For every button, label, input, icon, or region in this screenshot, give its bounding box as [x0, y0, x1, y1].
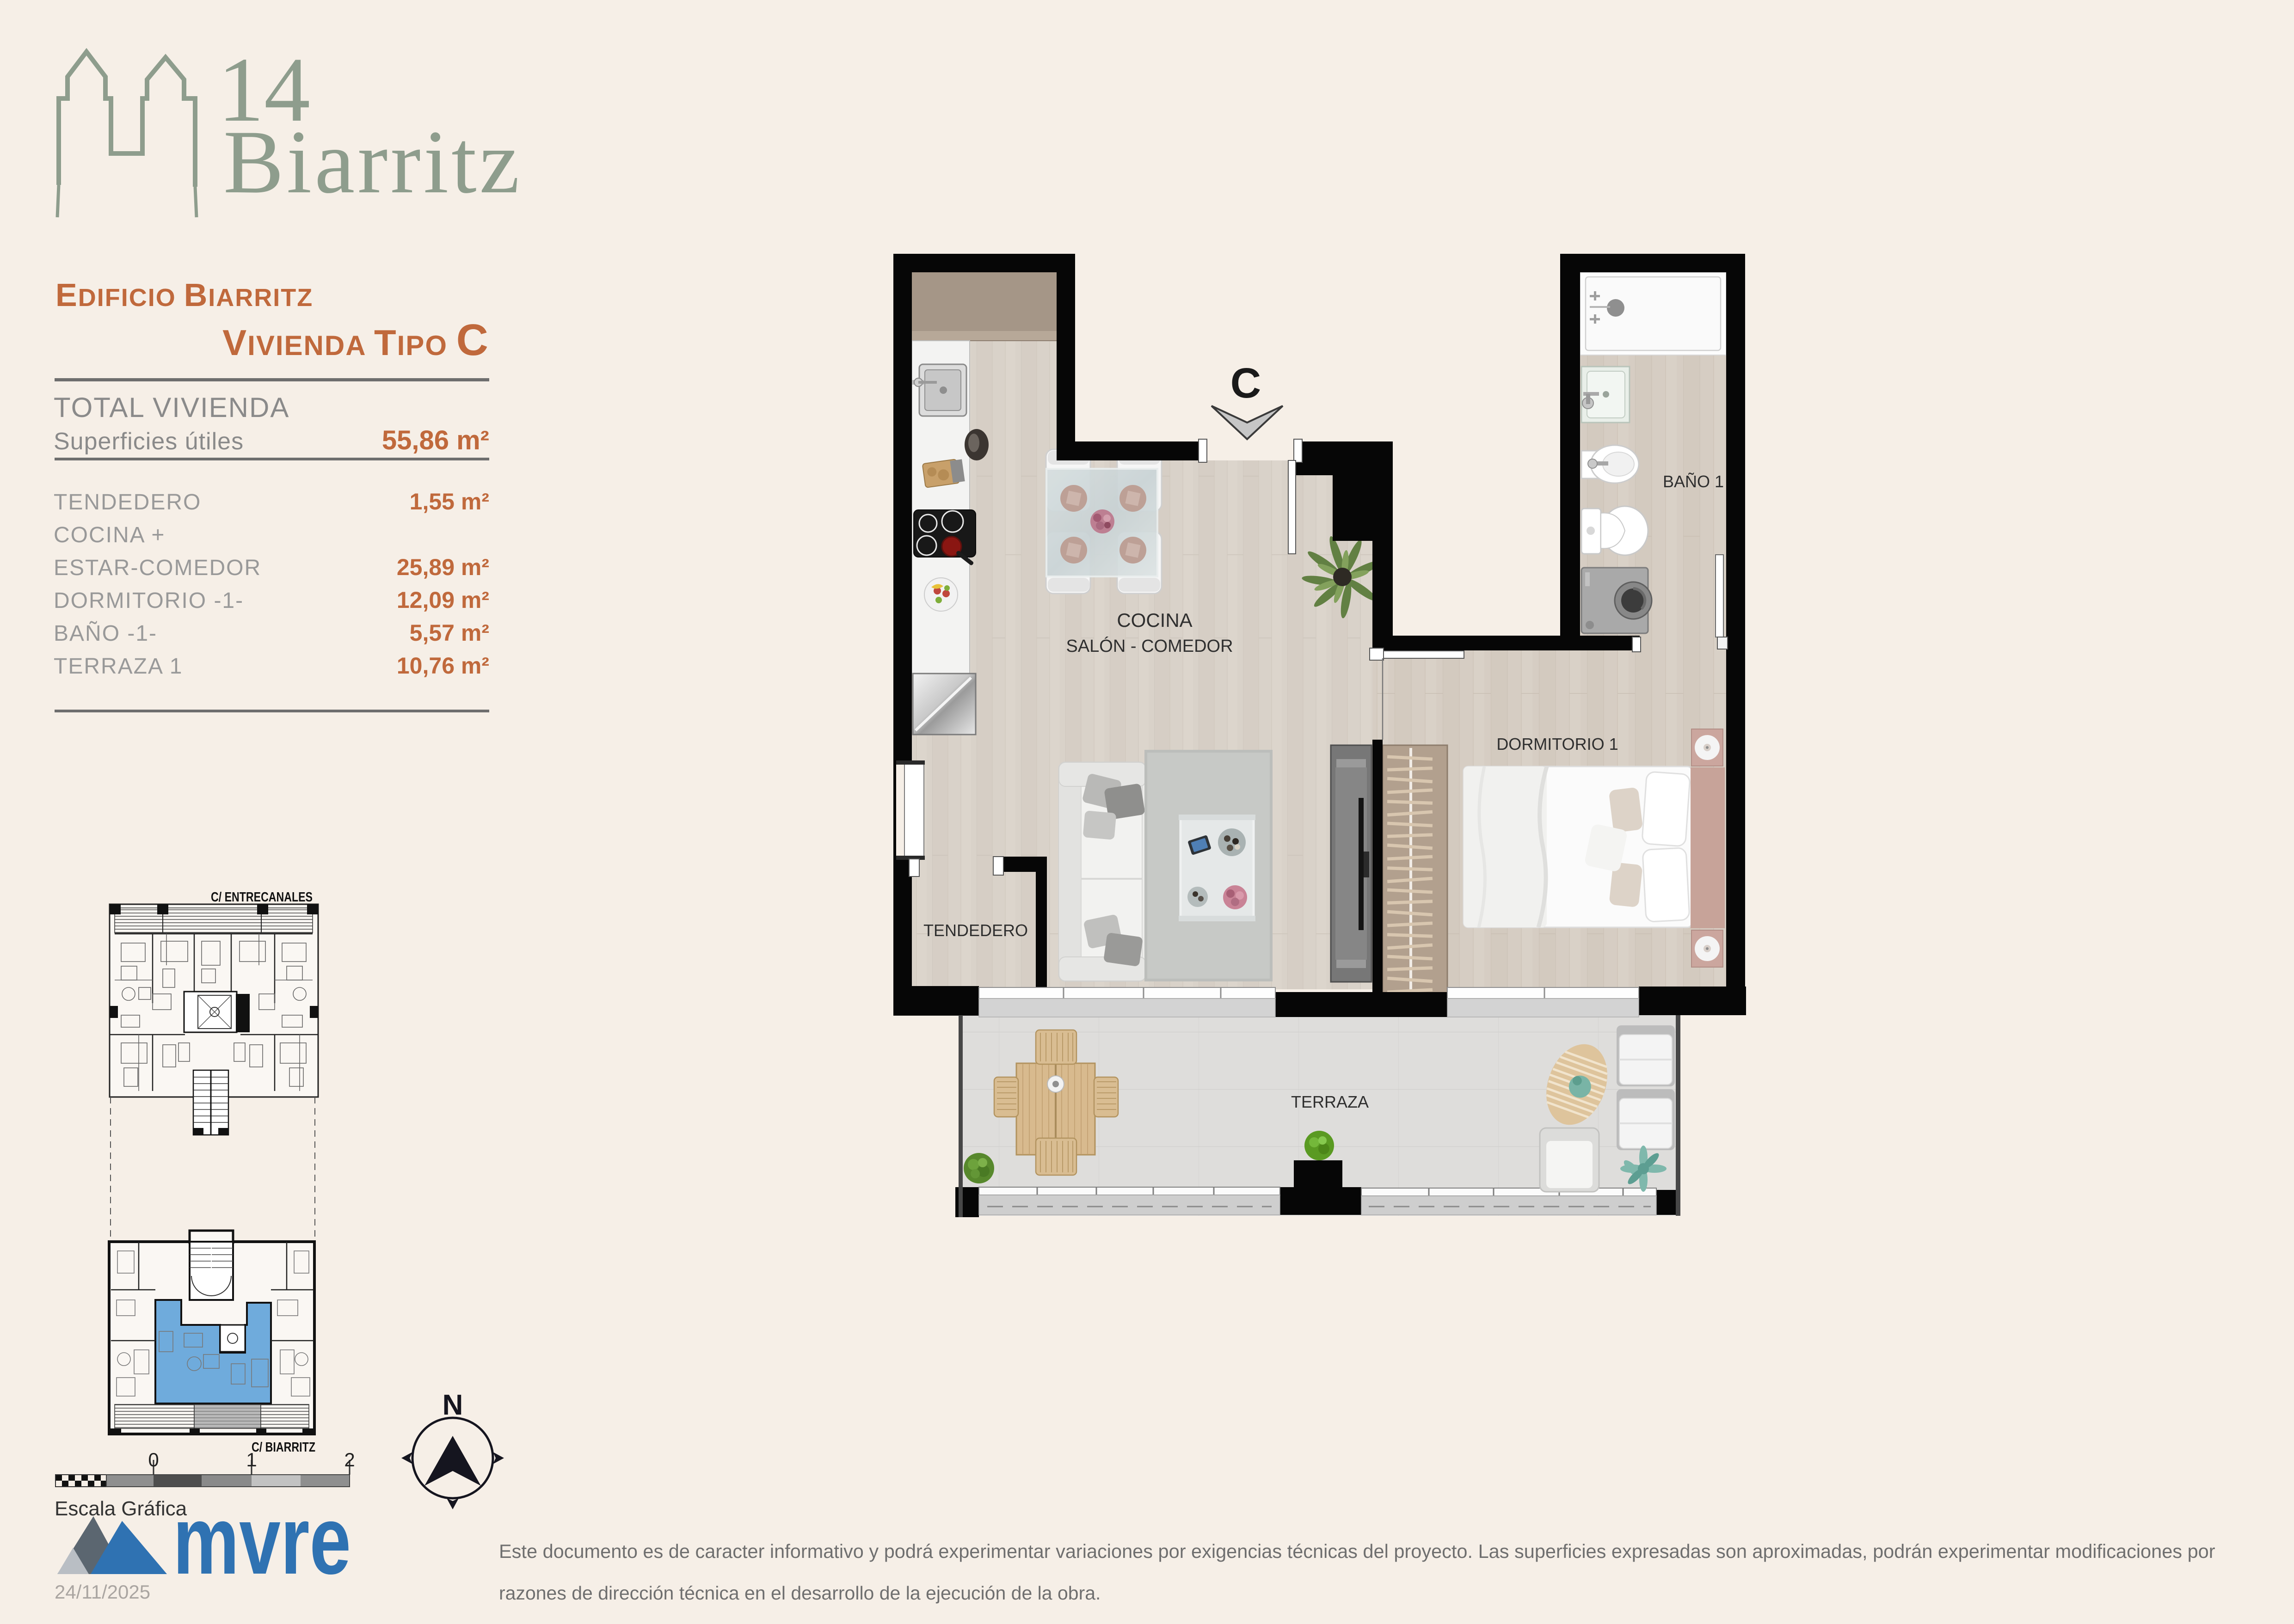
svg-text:25,89 m²: 25,89 m² — [397, 554, 489, 580]
svg-text:Escala Gráfica: Escala Gráfica — [55, 1497, 187, 1520]
svg-text:DORMITORIO 1: DORMITORIO 1 — [1496, 735, 1618, 754]
svg-text:1: 1 — [246, 1449, 257, 1471]
svg-text:C: C — [1230, 360, 1261, 407]
svg-text:TERRAZA: TERRAZA — [1291, 1092, 1369, 1111]
svg-text:C/ BIARRITZ: C/ BIARRITZ — [252, 1440, 315, 1455]
svg-text:10,76 m²: 10,76 m² — [397, 653, 489, 679]
svg-text:0: 0 — [148, 1449, 159, 1471]
svg-text:SALÓN - COMEDOR: SALÓN - COMEDOR — [1066, 636, 1233, 656]
svg-text:BAÑO -1-: BAÑO -1- — [54, 621, 157, 646]
svg-text:55,86 m²: 55,86 m² — [382, 425, 489, 455]
svg-text:DORMITORIO -1-: DORMITORIO -1- — [54, 588, 244, 613]
svg-text:mvre: mvre — [173, 1486, 351, 1594]
svg-text:TOTAL VIVIENDA: TOTAL VIVIENDA — [54, 392, 289, 423]
svg-text:C/ ENTRECANALES: C/ ENTRECANALES — [211, 890, 313, 905]
svg-text:Este documento es de caracter: Este documento es de caracter informativ… — [499, 1540, 2215, 1562]
svg-text:Superficies útiles: Superficies útiles — [54, 428, 244, 455]
svg-text:TERRAZA 1: TERRAZA 1 — [54, 654, 183, 679]
svg-text:N: N — [443, 1389, 463, 1421]
svg-text:COCINA +: COCINA + — [54, 523, 165, 547]
svg-text:1,55 m²: 1,55 m² — [410, 489, 489, 515]
svg-text:24/11/2025: 24/11/2025 — [55, 1581, 150, 1603]
svg-text:razones de dirección técnica e: razones de dirección técnica en el desar… — [499, 1582, 1101, 1604]
svg-text:12,09 m²: 12,09 m² — [397, 587, 489, 613]
svg-text:5,57 m²: 5,57 m² — [410, 620, 489, 646]
svg-text:2: 2 — [344, 1449, 355, 1471]
svg-text:ESTAR-COMEDOR: ESTAR-COMEDOR — [54, 556, 261, 580]
svg-text:TENDEDERO: TENDEDERO — [923, 921, 1028, 940]
svg-text:COCINA: COCINA — [1117, 609, 1192, 631]
svg-text:BAÑO 1: BAÑO 1 — [1663, 472, 1724, 491]
svg-text:Biarritz: Biarritz — [223, 112, 523, 212]
svg-text:TENDEDERO: TENDEDERO — [54, 490, 201, 515]
